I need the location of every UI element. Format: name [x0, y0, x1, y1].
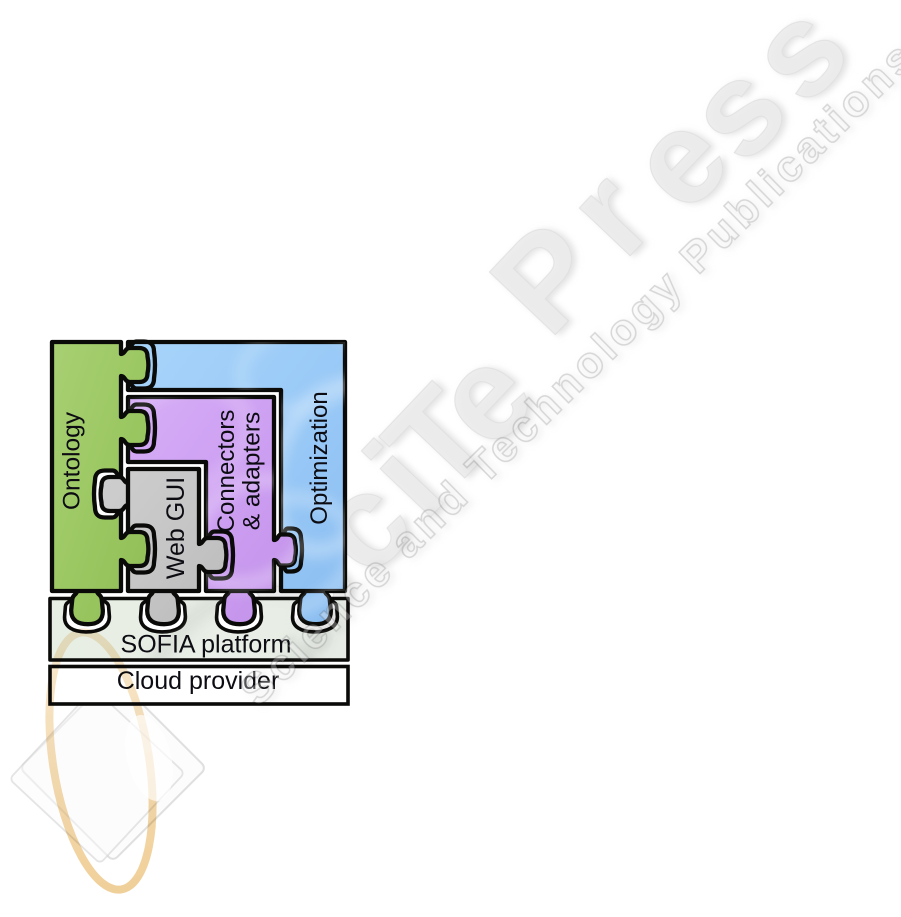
svg-text:Web GUI: Web GUI	[162, 477, 190, 579]
svg-text:Optimization: Optimization	[306, 391, 333, 524]
svg-text:Connectors: Connectors	[213, 410, 240, 533]
svg-text:& adapters: & adapters	[239, 412, 266, 531]
svg-text:Ontology: Ontology	[59, 411, 86, 510]
